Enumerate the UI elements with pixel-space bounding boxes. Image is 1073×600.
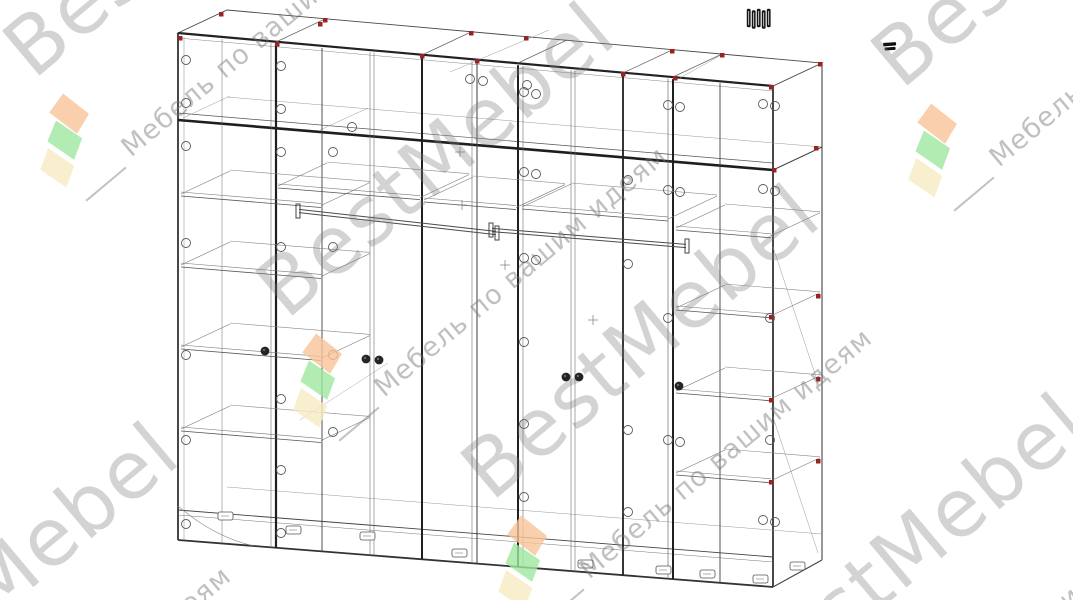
product-drawing-canvas: BestMebel Мебель по вашим идеям BestMebe… (0, 0, 1073, 600)
wardrobe-fittings-and-shelves (178, 12, 823, 583)
dowel-pins-icon (747, 9, 770, 29)
wardrobe-carcass (178, 10, 822, 587)
screws-icon (883, 42, 896, 50)
wardrobe-wireframe-drawing (0, 0, 1073, 600)
